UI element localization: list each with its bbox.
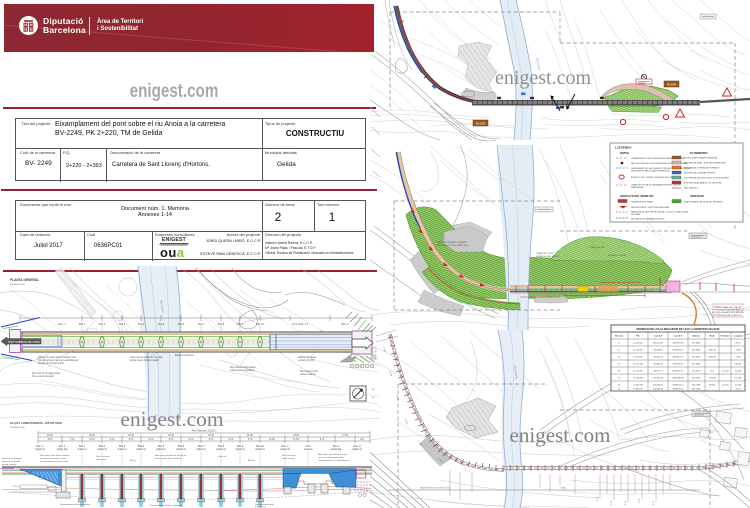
svg-text:19,40: 19,40 (247, 435, 253, 437)
svg-text:9,70: 9,70 (149, 439, 154, 441)
svg-text:58,240: 58,240 (735, 364, 742, 366)
svg-text:SEMÀFOR A RETIRAR: SEMÀFOR A RETIRAR (631, 201, 653, 204)
svg-text:ESBROSSADA I NETEJA DEL TERREN: ESBROSSADA I NETEJA DEL TERRENY (684, 201, 723, 204)
svg-text:Fonamentació amb micropilons: Fonamentació amb micropilons (60, 503, 91, 506)
svg-text:9,70: 9,70 (229, 439, 234, 441)
svg-text:2+336,260: 2+336,260 (633, 378, 644, 380)
svg-text:ALÇAT LONGITUDINAL. ESTAT NOU: ALÇAT LONGITUDINAL. ESTAT NOU (10, 421, 62, 425)
svg-text:Barana metàl·lica: Barana metàl·lica (175, 354, 194, 357)
svg-text:185,2548: 185,2548 (692, 385, 702, 387)
svg-text:31,88: 31,88 (735, 350, 741, 352)
svg-text:4588136,17: 4588136,17 (673, 389, 685, 391)
svg-text:(Alçat 4): (Alçat 4) (352, 448, 361, 451)
svg-text:17,50: 17,50 (342, 435, 348, 437)
svg-text:Nou tauler amb aletes inclinat: Nou tauler amb aletes inclinat i (40, 454, 70, 457)
svg-text:9,70: 9,70 (189, 439, 194, 441)
svg-text:DISTRIBUCIÓ DEL CAMÍ VELL): DISTRIBUCIÓ DEL CAMÍ VELL) (437, 244, 469, 247)
svg-text:Pila 10: Pila 10 (256, 322, 264, 326)
svg-text:Azimut: Azimut (692, 335, 700, 338)
svg-text:26,73: 26,73 (735, 343, 741, 345)
svg-text:2+300: 2+300 (417, 441, 422, 448)
svg-text:(Alçat 3a): (Alçat 3a) (331, 448, 342, 451)
svg-text:20,00: 20,00 (89, 435, 95, 437)
svg-text:Pila 8: Pila 8 (218, 322, 225, 326)
svg-text:SERVEI AFECTAT (ZONA EN RESERV: SERVEI AFECTAT (ZONA EN RESERVA) (631, 170, 670, 173)
svg-text:fonamentació per estintolament: fonamentació per estintolament (318, 459, 349, 462)
svg-text:E-1: E-1 (372, 389, 376, 391)
svg-text:76,74: 76,74 (735, 389, 741, 391)
svg-text:LLEGENDA: LLEGENDA (615, 146, 632, 150)
svg-text:Pont exist. 1:1: Pont exist. 1:1 (292, 322, 309, 326)
svg-text:SOBRE EL RIU ANOIA: SOBRE EL RIU ANOIA (536, 255, 559, 258)
svg-text:PRAT DE LA RIBA (TORRENT: PRAT DE LA RIBA (TORRENT (437, 241, 468, 244)
svg-text:Fonamentació existent (sabates: Fonamentació existent (sabates) (150, 504, 182, 507)
svg-text:401385,34: 401385,34 (653, 389, 664, 391)
svg-text:estrep existent: estrep existent (300, 373, 316, 376)
svg-text:EXISTÈNCIA TALUSSOS DEL PONT E: EXISTÈNCIA TALUSSOS DEL PONT EXISTENT (684, 177, 730, 180)
svg-text:21,460: 21,460 (735, 385, 742, 387)
svg-text:401358,24: 401358,24 (653, 385, 664, 387)
svg-text:BARRERA DE SEGURETAT METÀL·LIC: BARRERA DE SEGURETAT METÀL·LICA STD 120A… (631, 211, 689, 214)
svg-text:Nou tauler amb aletes inclinat: Nou tauler amb aletes inclinat, (318, 453, 348, 456)
svg-text:(Alçat 2): (Alçat 2) (255, 448, 264, 451)
svg-text:Bk,Dry: Bk,Dry (130, 459, 137, 462)
svg-text:4587834,57: 4587834,57 (673, 350, 685, 352)
svg-text:TALL AMB EIX: TALL AMB EIX (684, 187, 698, 190)
svg-text:PLANIMETRIA: PLANIMETRIA (690, 151, 708, 155)
svg-text:181,7456: 181,7456 (692, 378, 702, 380)
svg-text:9,70: 9,70 (209, 439, 214, 441)
svg-text:fins a cota coronació: fins a cota coronació (32, 375, 55, 378)
svg-text:existent: existent (304, 448, 313, 451)
svg-text:2+258,655: 2+258,655 (633, 357, 644, 359)
svg-text:11,50: 11,50 (269, 439, 275, 441)
svg-text:Pila 3: Pila 3 (119, 322, 126, 326)
svg-text:147,2856: 147,2856 (692, 350, 702, 352)
svg-text:P-30: P-30 (639, 499, 641, 503)
svg-text:BV-2249: BV-2249 (476, 123, 486, 125)
svg-text:P-28: P-28 (625, 501, 627, 505)
svg-text:(Alçat 2): (Alçat 2) (77, 448, 86, 451)
svg-text:SENYALITZACIÓ I MOBILITAT: SENYALITZACIÓ I MOBILITAT (620, 195, 654, 198)
svg-text:armat (veure plànols detall): armat (veure plànols detall) (130, 359, 159, 362)
svg-text:2+226,731: 2+226,731 (633, 350, 644, 352)
svg-text:Escala de formigó armat: Escala de formigó armat (38, 362, 64, 365)
svg-text:157,8516: 157,8516 (692, 371, 702, 373)
svg-text:401322,26: 401322,26 (653, 378, 664, 380)
svg-text:19,40: 19,40 (208, 435, 214, 437)
svg-text:(Alçat 2): (Alçat 2) (136, 448, 145, 451)
svg-text:SENYALITZACIÓ VERTICAL A RETIR: SENYALITZACIÓ VERTICAL A RETIRAR (631, 206, 670, 209)
svg-text:Coord.X: Coord.X (654, 336, 663, 338)
svg-text:(Alçat 2): (Alçat 2) (97, 448, 106, 451)
svg-text:sobre estrep: sobre estrep (282, 457, 295, 460)
svg-text:VIA EXISTENT BV-2249 ACTUAL: VIA EXISTENT BV-2249 ACTUAL (420, 487, 451, 490)
svg-text:ESCALA 1:500: ESCALA 1:500 (10, 426, 25, 429)
svg-text:8,75: 8,75 (320, 439, 325, 441)
svg-text:15,00: 15,00 (47, 435, 53, 437)
svg-text:7,50: 7,50 (70, 439, 75, 441)
svg-text:9,70: 9,70 (110, 439, 115, 441)
svg-text:MANTINDRÀ: MANTINDRÀ (631, 186, 644, 189)
svg-text:Pila 2: Pila 2 (99, 322, 106, 326)
svg-text:CAMÍ DEL RIU: CAMÍ DEL RIU (590, 246, 605, 249)
svg-text:2+260: 2+260 (395, 395, 399, 402)
svg-text:EXISTÈNCIA ERALL EXISTENT A AM: EXISTÈNCIA ERALL EXISTENT A AMPLIAR (684, 162, 726, 165)
svg-text:estrep existent: estrep existent (2, 463, 17, 466)
svg-text:21,460: 21,460 (735, 371, 742, 373)
svg-text:Nou recrescut: Nou recrescut (282, 454, 296, 457)
svg-text:PONT SOBRE EL RIU ANOIA: PONT SOBRE EL RIU ANOIA (8, 341, 40, 344)
svg-text:TRAM DEL PONT: TRAM DEL PONT (536, 252, 554, 255)
svg-text:(Alçat 2): (Alçat 2) (176, 448, 185, 451)
svg-text:ROTONDA (VEURE PLÀNOLS): ROTONDA (VEURE PLÀNOLS) (712, 314, 742, 317)
svg-text:401277,71: 401277,71 (653, 371, 664, 373)
svg-text:4587846,58: 4587846,58 (673, 378, 685, 380)
svg-text:existent (1:200): existent (1:200) (298, 359, 315, 362)
svg-text:armat al costat del: armat al costat del (2, 460, 20, 463)
svg-text:CTRA: CTRA (560, 487, 566, 490)
svg-text:nou mur de formigó armat: nou mur de formigó armat (40, 457, 66, 460)
svg-text:2+386,057: 2+386,057 (633, 389, 644, 391)
svg-text:-27,220: -27,220 (721, 371, 729, 373)
svg-text:Pila 4: Pila 4 (138, 322, 145, 326)
svg-text:4587800,62: 4587800,62 (673, 364, 685, 366)
svg-text:4588144,14: 4588144,14 (673, 385, 685, 387)
svg-text:EXISTÈNCIA ALINEACIÓ DE L'EIX: EXISTÈNCIA ALINEACIÓ DE L'EIX VIAL (684, 182, 723, 185)
svg-text:EXISTÈNCIA CUNETA FORMIGÓ: EXISTÈNCIA CUNETA FORMIGÓ (684, 172, 716, 175)
svg-text:(Alçat 2): (Alçat 2) (216, 448, 225, 451)
svg-text:BV-2249: BV-2249 (667, 84, 677, 86)
svg-text:Estr. 1: Estr. 1 (58, 322, 66, 326)
svg-text:P.K.: P.K. (636, 336, 640, 338)
svg-text:RETIRAR: RETIRAR (631, 213, 641, 216)
svg-text:(Alçat 2): (Alçat 2) (235, 448, 244, 451)
svg-text:P-26: P-26 (611, 501, 613, 505)
svg-text:401239,67: 401239,67 (653, 350, 664, 352)
svg-text:Pila 7: Pila 7 (198, 322, 205, 326)
svg-text:-50,000: -50,000 (708, 378, 716, 380)
svg-text:151,4532: 151,4532 (692, 357, 702, 359)
svg-text:2+240: 2+240 (388, 371, 392, 378)
svg-text:Longitud: Longitud (733, 335, 743, 338)
svg-text:-27,220: -27,220 (721, 385, 729, 387)
svg-text:41,748: 41,748 (735, 378, 742, 380)
svg-text:PONT A SANT SADURNÍ AMB LA: PONT A SANT SADURNÍ AMB LA (712, 309, 744, 312)
svg-text:19,40: 19,40 (128, 435, 134, 437)
svg-text:5,00: 5,00 (48, 439, 53, 441)
svg-text:Estr. 2: Estr. 2 (341, 322, 349, 326)
svg-text:2+349,238: 2+349,238 (633, 385, 644, 387)
svg-text:Junt nou: Junt nou (218, 455, 227, 458)
svg-text:RETIRADA DE BARANA EXISTENT: RETIRADA DE BARANA EXISTENT (631, 218, 665, 221)
svg-text:9,70: 9,70 (248, 439, 253, 441)
svg-text:(Alçat 2): (Alçat 2) (117, 448, 126, 451)
svg-text:EXISTÈNCIA VORERA DE FORMIGÓ: EXISTÈNCIA VORERA DE FORMIGÓ (684, 167, 720, 170)
svg-text:CONNEXIÓ AMB LA CTRA DEL: CONNEXIÓ AMB LA CTRA DEL (712, 306, 743, 309)
svg-text:per estintolament provisional: per estintolament provisional (40, 460, 68, 463)
svg-text:nou mur de formigó armat i: nou mur de formigó armat i (318, 456, 345, 459)
svg-text:sobre piles: sobre piles (96, 458, 107, 461)
svg-text:401286,39: 401286,39 (653, 364, 664, 366)
svg-text:Pila 1: Pila 1 (79, 322, 86, 326)
svg-text:-530,000: -530,000 (708, 357, 717, 359)
svg-text:2+273,735: 2+273,735 (633, 371, 644, 373)
svg-text:NOVA ROTONDA: NOVA ROTONDA (608, 254, 626, 257)
svg-text:E-2: E-2 (372, 397, 376, 399)
svg-text:Nou tauler prefabricat de bigu: Nou tauler prefabricat de bigues (155, 454, 187, 457)
svg-text:23,00: 23,00 (293, 435, 299, 437)
svg-text:PLANTA GENERAL: PLANTA GENERAL (10, 278, 39, 282)
svg-text:K.Paràm: K.Paràm (721, 336, 730, 338)
svg-text:BV-2249 I TRONCS DE LA NOVA: BV-2249 I TRONCS DE LA NOVA (712, 311, 744, 314)
svg-text:NOTES: NOTES (620, 151, 629, 155)
svg-text:19,40: 19,40 (168, 435, 174, 437)
svg-text:Número: Número (615, 336, 624, 338)
svg-text:11,50: 11,50 (293, 439, 299, 441)
svg-text:21,86: 21,86 (735, 357, 741, 359)
svg-text:Pila 6: Pila 6 (178, 322, 185, 326)
svg-text:Nou mur de formigó: Nou mur de formigó (2, 457, 22, 460)
svg-text:ESCALA 1:500: ESCALA 1:500 (10, 283, 25, 286)
svg-text:artesa sobre piles existents: artesa sobre piles existents (155, 457, 182, 460)
svg-text:P-32: P-32 (653, 501, 655, 505)
svg-text:FRONT D'AIXECAMENT ASFALTAT: FRONT D'AIXECAMENT ASFALTAT (684, 157, 718, 160)
svg-text:Pila 9: Pila 9 (237, 322, 244, 326)
svg-text:Bk,Dry: Bk,Dry (248, 459, 255, 462)
svg-text:Radi: Radi (710, 336, 715, 338)
svg-text:-530,000: -530,000 (708, 350, 717, 352)
svg-text:401225,24: 401225,24 (653, 343, 664, 345)
svg-text:(Alçat 3): (Alçat 3) (280, 448, 289, 451)
svg-text:9,70: 9,70 (90, 439, 95, 441)
svg-text:Pila 5: Pila 5 (158, 322, 165, 326)
svg-text:4587847,16: 4587847,16 (673, 371, 685, 373)
svg-text:(Alçat 1): (Alçat 1) (35, 448, 44, 451)
svg-text:147,2856: 147,2856 (692, 364, 702, 366)
svg-text:(Alçat 2): (Alçat 2) (196, 448, 205, 451)
svg-text:VEGETACIÓ: VEGETACIÓ (690, 195, 704, 198)
svg-text:4587812,77: 4587812,77 (673, 357, 685, 359)
svg-text:(Alçat 1a): (Alçat 1a) (57, 448, 68, 451)
svg-text:401262,24: 401262,24 (653, 357, 664, 359)
svg-text:DESVIAMENT DE LA LÍNIA ELÈCTRI: DESVIAMENT DE LA LÍNIA ELÈCTRICA SOTERRA… (631, 167, 691, 170)
svg-text:Coord.Y: Coord.Y (674, 336, 683, 338)
svg-text:(Alçat 2): (Alçat 2) (156, 448, 165, 451)
svg-text:4,37: 4,37 (360, 439, 365, 441)
svg-text:Nou recrescut: Nou recrescut (96, 455, 110, 458)
svg-text:2+220,000: 2+220,000 (633, 343, 644, 345)
svg-text:185,2548: 185,2548 (692, 389, 702, 391)
svg-text:2+280: 2+280 (404, 419, 408, 426)
svg-text:147,2856: 147,2856 (692, 343, 702, 345)
svg-text:9,70: 9,70 (169, 439, 174, 441)
svg-text:2+277,148: 2+277,148 (633, 364, 644, 366)
svg-text:AJUSTOS DE CURVES I SENYALS A: AJUSTOS DE CURVES I SENYALS A RETIRAR (631, 176, 676, 179)
svg-text:2+220: 2+220 (382, 347, 386, 354)
svg-text:4587857,48: 4587857,48 (673, 343, 685, 345)
svg-text:48,000: 48,000 (709, 385, 716, 387)
svg-text:9,70: 9,70 (129, 439, 134, 441)
svg-text:existent amb ampliació: existent amb ampliació (230, 369, 255, 372)
svg-text:P-24: P-24 (597, 497, 599, 501)
